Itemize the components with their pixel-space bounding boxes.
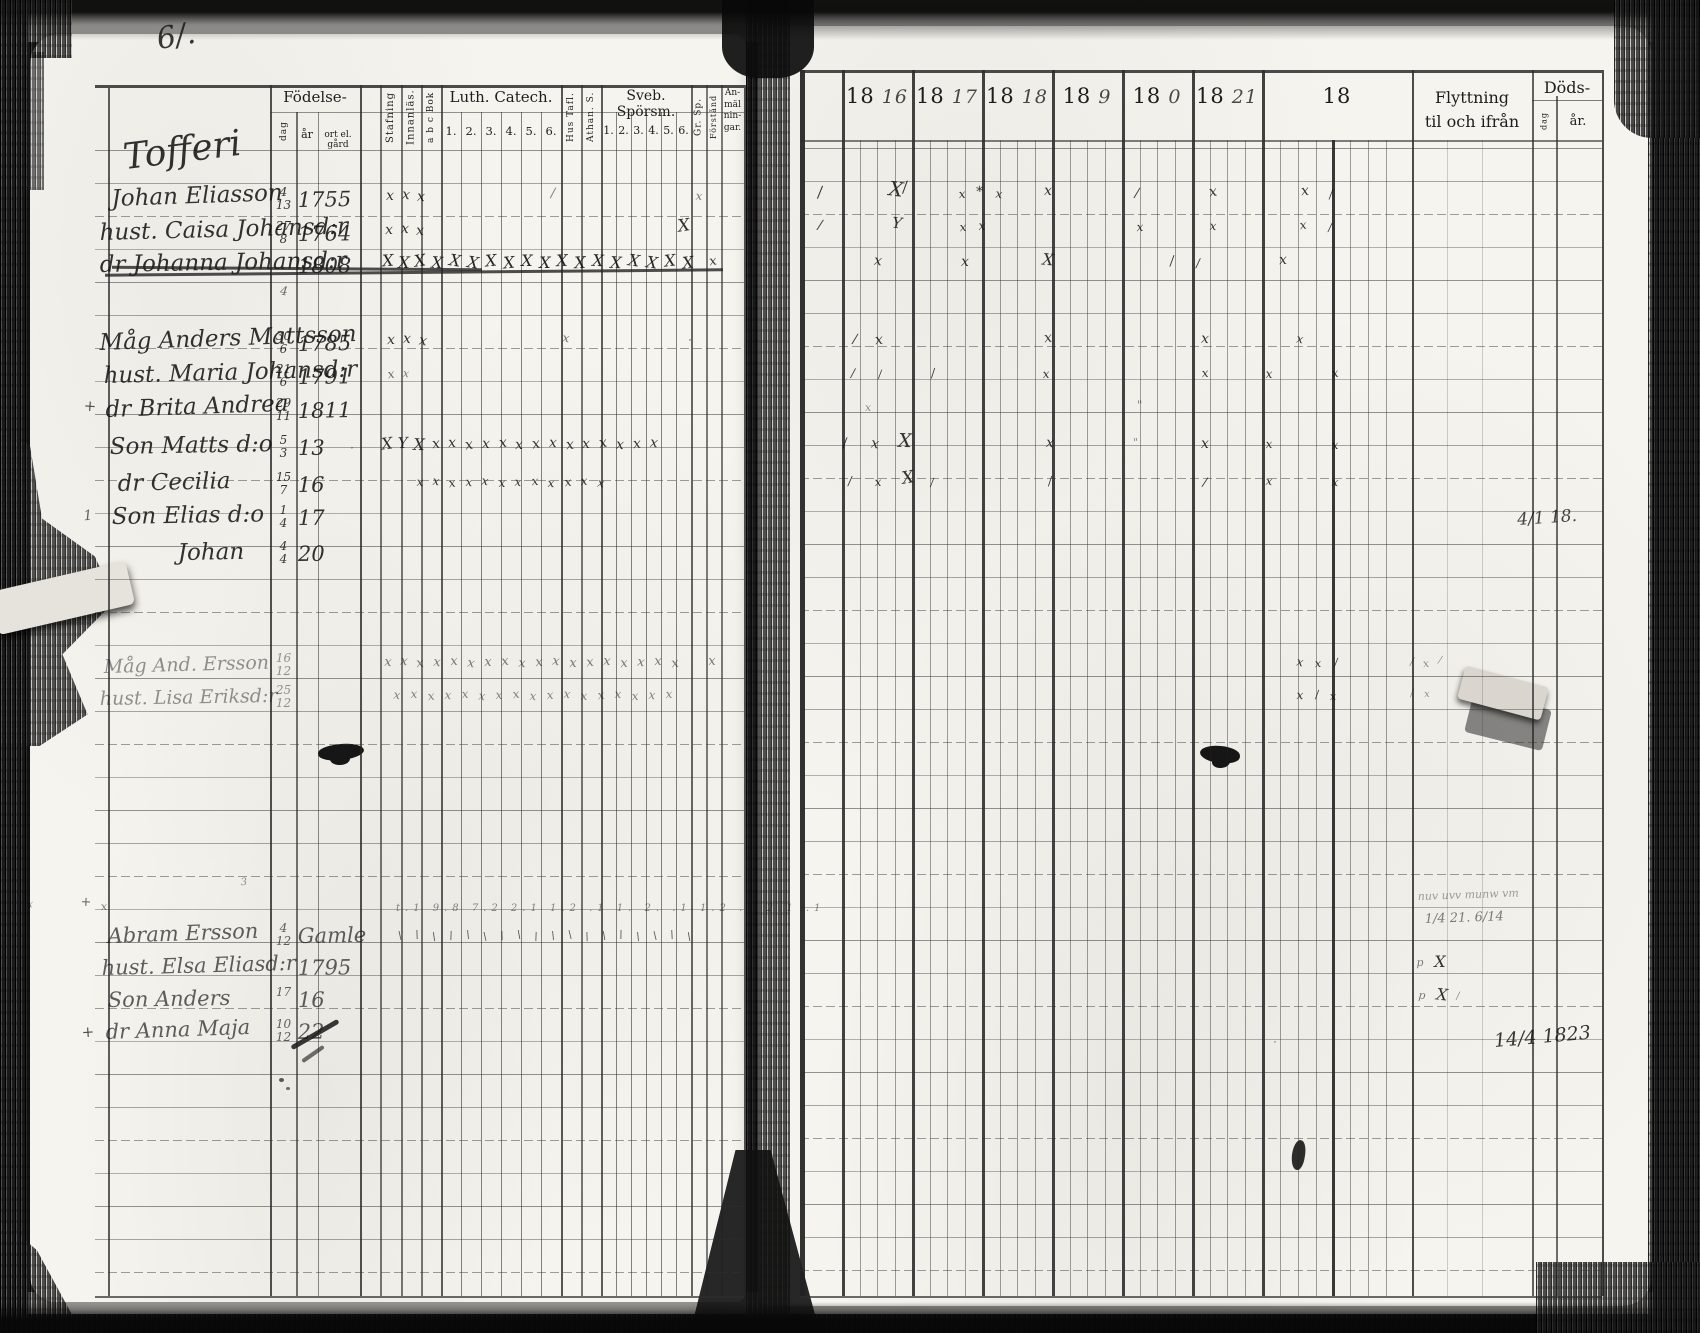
grid-line (95, 843, 744, 844)
birth-frac-part: 7 (270, 484, 297, 497)
year-header: 18 16 (842, 84, 912, 108)
birth-frac-part: 16 (270, 652, 297, 665)
mark: X (1430, 954, 1450, 970)
grid-line (800, 940, 1602, 941)
mark: 1 (77, 508, 98, 524)
fodelse-header: Födelse- (270, 88, 360, 106)
grid-line (95, 1173, 744, 1174)
grid-line (501, 112, 502, 1296)
grid-line (800, 742, 1602, 743)
grid-line (1262, 70, 1265, 1296)
birth-day-month: 306 (270, 330, 297, 355)
year-header-written: 18 (1015, 86, 1048, 108)
grid-line (800, 907, 1602, 908)
birth-frac-part: 12 (270, 665, 297, 678)
birth-frac-part: 5 (270, 434, 297, 447)
grid-line (1602, 70, 1604, 1296)
grid-line (744, 85, 746, 1296)
mark: / (1448, 992, 1468, 1003)
birth-day-month: 53 (270, 434, 297, 459)
mark: x (1259, 368, 1279, 380)
grid-line (95, 1074, 744, 1075)
mark: / (922, 476, 943, 489)
mark: / (845, 332, 866, 346)
luth-col-number: 6. (541, 124, 561, 138)
mark: / (1188, 257, 1208, 270)
grid-line (270, 112, 744, 113)
grid-line (95, 85, 744, 88)
sveb-col-number: 5. (661, 124, 676, 137)
grid-line (800, 577, 1602, 578)
sveb-col-number: 6. (676, 124, 691, 137)
mark: x (1294, 183, 1315, 199)
mark: x (1195, 366, 1216, 380)
grid-line (481, 112, 482, 1296)
birth-year: 16 (298, 473, 325, 497)
mark: p (1412, 989, 1433, 1002)
grid-line (95, 645, 744, 646)
mark: · (1265, 1035, 1286, 1049)
birth-frac-part: 27 (270, 220, 297, 233)
mark: x (1259, 474, 1280, 487)
grid-line (982, 70, 985, 1296)
grid-line (95, 1107, 744, 1108)
mark: x (1325, 439, 1345, 452)
mark: x (858, 401, 879, 413)
annotation: 1/4 21. 6/14 (1424, 909, 1504, 927)
birth-day-month: 44 (270, 540, 297, 565)
birth-frac-part: 4 (270, 540, 297, 553)
birth-day-month: 1012 (270, 1018, 297, 1043)
birth-frac-part: 1 (270, 504, 297, 517)
mark: x (1203, 220, 1223, 233)
row-name: Johan (178, 539, 245, 566)
mark: / (543, 187, 563, 200)
birth-frac-part: 4 (270, 186, 297, 199)
grid-line (1412, 70, 1414, 1296)
grid-line (95, 1206, 744, 1207)
mark: x (1325, 475, 1346, 488)
row-name: Son Elias d:o (112, 501, 265, 530)
birth-day-month: 14 (270, 504, 297, 529)
luth-col-number: 3. (481, 124, 501, 138)
grid-line (521, 112, 522, 1296)
mark: " (1129, 398, 1150, 412)
row-name: Son Anders (108, 986, 231, 1012)
grid-line (95, 678, 744, 679)
mark: · (342, 441, 363, 454)
bottom-right-corner (1536, 1262, 1700, 1333)
ink-fleck (279, 1078, 284, 1082)
grid-line (541, 112, 542, 1296)
grid-line (842, 70, 845, 1296)
mark: x (1323, 691, 1343, 703)
birth-frac-part: 21 (270, 363, 297, 376)
mark: x (1259, 438, 1279, 451)
birth-frac-part: 4 (270, 922, 297, 935)
grid-line (800, 973, 1602, 974)
mark: x (555, 331, 576, 345)
annotation: 6/. (154, 16, 198, 57)
birth-day-month: 278 (270, 220, 297, 245)
grid-line (800, 1072, 1602, 1073)
ink-blot-left-2 (330, 752, 350, 765)
birth-year: 13 (298, 436, 325, 460)
grid-line (800, 610, 1602, 611)
birth-year: 1764 (298, 221, 352, 246)
mark: x (1273, 252, 1294, 267)
mark: / (1326, 656, 1347, 669)
ink-fleck-2 (286, 1087, 290, 1090)
top-left-corner (0, 0, 72, 58)
mark: X (895, 432, 916, 452)
grid-line (800, 709, 1602, 710)
grid-line (676, 112, 677, 1296)
mark: x (1130, 221, 1150, 234)
forstand-column-label: Förstånd (706, 88, 721, 146)
grid-line (1532, 100, 1602, 101)
birth-day-month: 413 (270, 186, 297, 211)
right-edge-band (1648, 0, 1700, 1333)
grid-line (631, 112, 632, 1296)
mark: Y (886, 215, 907, 232)
luth-col-number: 4. (501, 124, 521, 138)
row-name: Son Matts d:o (110, 431, 273, 460)
grid-line (800, 1138, 1602, 1139)
birth-year: 1791 (298, 364, 352, 389)
grid-line (1192, 70, 1195, 1296)
mark: x (702, 654, 723, 668)
birth-frac-part: 15 (270, 471, 297, 484)
mark: x (868, 332, 889, 348)
innanlas-column-label: Innanläs. (401, 88, 421, 146)
year-header-written: 21 (1225, 86, 1258, 108)
mark: x (643, 435, 664, 451)
birth-frac-part: 12 (270, 697, 297, 710)
grid-line (800, 511, 1602, 512)
luth-catech-header: Luth. Catech. (441, 88, 561, 106)
birth-frac-part: 8 (270, 233, 297, 246)
grid-line (800, 1204, 1602, 1205)
scanned-register-spread: Födelse- dag år ort el. gård Stafning In… (0, 0, 1700, 1333)
mark: x (664, 656, 686, 672)
year-header: 18 9 (1052, 84, 1122, 108)
mark: X (1037, 251, 1058, 269)
mark: x (659, 688, 679, 701)
grid-line (800, 676, 1602, 677)
year-header-written: 16 (875, 86, 908, 108)
mark: / (1320, 187, 1341, 201)
birth-frac-part: 29 (270, 397, 297, 410)
mark: x (988, 187, 1009, 201)
sveb-col-number: 3. (631, 124, 646, 137)
stafning-column-label: Stafning (380, 88, 401, 146)
dods-ar-label: år. (1556, 114, 1600, 129)
fodelse-ort-label: ort el. gård (314, 130, 362, 150)
sveb-col-number: 1. (601, 124, 616, 137)
grid-line (800, 313, 1602, 314)
birth-frac-part: 12 (270, 935, 297, 948)
birth-year: 16 (298, 988, 325, 1012)
mark: x (94, 900, 115, 912)
grid-line (661, 112, 662, 1296)
grid-line (800, 1270, 1602, 1271)
grid-line (95, 876, 744, 877)
mark: x (972, 220, 992, 232)
grid-line (800, 874, 1602, 875)
birth-day-month: 1612 (270, 652, 297, 677)
year-header-written: 9 (1091, 86, 1111, 108)
mark: / (894, 179, 916, 196)
mark: / (1161, 254, 1182, 269)
birth-day-month: 412 (270, 922, 297, 947)
mark: + (80, 398, 101, 414)
year-header: 18 21 (1192, 84, 1262, 108)
birth-year: 17 (298, 506, 325, 530)
grid-line (95, 1272, 744, 1273)
mark: x (1324, 366, 1345, 380)
mark: x (411, 189, 432, 204)
grid-line (800, 1039, 1602, 1040)
grid-line (800, 214, 1602, 215)
grid-line (800, 148, 1602, 149)
mark: X (677, 254, 699, 272)
mark: + (78, 1024, 99, 1040)
year-header: 18 18 (982, 84, 1052, 108)
birth-year: 1785 (298, 331, 352, 356)
grid-line (1122, 70, 1125, 1296)
birth-frac-part: 3 (270, 447, 297, 460)
mark: x (1417, 689, 1437, 700)
year-header-written: 0 (1161, 86, 1181, 108)
year-header: 18 (1262, 84, 1412, 108)
grid-line (912, 70, 915, 1296)
sveb-col-number: 4. (646, 124, 661, 137)
grsp-column-label: Gr. Sp. (691, 88, 706, 146)
year-header-written: 17 (945, 86, 978, 108)
mark: / (834, 436, 855, 451)
annotation: – ·– — · · –– –· · — — – · (64, 0, 319, 13)
birth-day-month: 2512 (270, 684, 297, 709)
mark: / (809, 218, 830, 233)
mark: / (1127, 186, 1148, 200)
left-edge-patch-top (0, 52, 44, 190)
mark: x (1195, 331, 1216, 346)
grid-line (800, 1296, 1602, 1298)
row-name: Måg And. Ersson (103, 652, 269, 678)
birth-frac-part: 6 (270, 343, 297, 356)
grid-line (800, 181, 1602, 182)
dods-dag-label: dag (1534, 104, 1554, 138)
grid-line (800, 775, 1602, 776)
birth-frac-part: 17 (270, 986, 297, 999)
luth-col-number: 5. (521, 124, 541, 138)
birth-frac-part: 6 (270, 376, 297, 389)
mark: x (1040, 435, 1061, 450)
grid-line (646, 112, 647, 1296)
grid-line (616, 112, 617, 1296)
mark: / (840, 474, 861, 487)
grid-line (800, 1006, 1602, 1007)
mark: x (1038, 184, 1058, 198)
grid-line (800, 643, 1602, 644)
mark: · (679, 333, 700, 348)
mark: x (410, 224, 430, 238)
row-name: dr Cecilia (117, 468, 231, 497)
birth-frac-part: 4 (270, 517, 297, 530)
grid-line (800, 841, 1602, 842)
row-name: hust. Lisa Eriksd:r (100, 685, 278, 710)
grid-line (95, 315, 744, 316)
grid-line (95, 744, 744, 745)
grid-line (800, 412, 1602, 413)
luth-col-number: 1. (441, 124, 461, 138)
grid-line (95, 1041, 744, 1042)
birth-year: 1795 (298, 955, 352, 980)
mark: / (809, 184, 830, 201)
mark: x (867, 253, 888, 269)
mark: / (869, 368, 890, 381)
hustafl-column-label: Hus Tafl. (561, 88, 581, 146)
birth-frac-part: 13 (270, 199, 297, 212)
mark: / (1320, 222, 1340, 234)
grid-line (800, 70, 1602, 73)
year-header: 18 17 (912, 84, 982, 108)
grid-line (800, 808, 1602, 809)
row-name: dr Anna Maja (105, 1015, 250, 1044)
mark: p (1410, 957, 1430, 968)
birth-frac-part: 12 (270, 1031, 297, 1044)
year-header: 18 0 (1122, 84, 1192, 108)
dods-header: Döds- (1532, 78, 1602, 97)
row-name: hust. Elsa Eliasd:r (101, 951, 296, 980)
fodelse-dag-label: dag (272, 114, 296, 148)
grid-line (800, 247, 1602, 248)
grid-line (95, 579, 744, 580)
grid-line (1532, 70, 1534, 1296)
grid-line (800, 70, 805, 1296)
grid-line (318, 112, 319, 1296)
bottom-edge-band (0, 1302, 1700, 1333)
mark: X (897, 469, 919, 489)
birth-day-month: 157 (270, 471, 297, 496)
mark: x (864, 436, 886, 453)
mark: / (843, 367, 863, 379)
grid-line (1556, 96, 1558, 1296)
mark: x (1037, 330, 1059, 346)
birth-frac-part: 30 (270, 330, 297, 343)
birth-day-month: 17 (270, 986, 297, 999)
mark: x (1036, 367, 1057, 380)
birth-year: 22 (298, 1020, 325, 1044)
grid-line (800, 1237, 1602, 1238)
birth-year: 20 (298, 542, 325, 566)
birth-frac-part: 25 (270, 684, 297, 697)
annotation: 4/1 18. (1517, 506, 1578, 530)
grid-line (95, 1239, 744, 1240)
birth-year: 1811 (298, 398, 352, 423)
birth-frac-part: 11 (270, 410, 297, 423)
grid-line (461, 112, 462, 1296)
top-right-corner (1614, 0, 1700, 138)
grid-line (95, 612, 744, 613)
mark: / (1194, 475, 1215, 489)
mark: X (673, 217, 695, 237)
mark: x (1195, 437, 1215, 451)
grid-line (95, 777, 744, 778)
flyttning-header: Flyttning til och ifrån (1414, 86, 1530, 134)
grid-line (800, 544, 1602, 545)
mark: x (689, 189, 710, 202)
birth-frac-part: 4 (270, 553, 297, 566)
abcbok-column-label: a b c Bok (421, 88, 441, 146)
birth-frac-part: 10 (270, 1018, 297, 1031)
spine-shadow (746, 0, 790, 1333)
grid-line (95, 1296, 744, 1298)
mark: \ (679, 930, 700, 942)
grid-line (800, 1105, 1602, 1106)
mark: 4 (273, 284, 294, 298)
grid-line (800, 280, 1602, 281)
annotation: t.1 9.8 7.2 2.1 1.2 .1 1. 2. .1 1.2 .1 2… (396, 903, 825, 914)
mark: x (955, 255, 975, 269)
grid-line (95, 282, 744, 283)
mark: X (517, 253, 537, 269)
birth-day-month: 2911 (270, 397, 297, 422)
birth-day-month: 216 (270, 363, 297, 388)
grid-line (95, 711, 744, 712)
mark: x (868, 475, 889, 488)
luth-col-number: 2. (461, 124, 481, 138)
mark: x (412, 333, 434, 350)
grid-line (800, 140, 1602, 142)
grid-line (800, 1171, 1602, 1172)
mark: x (395, 367, 416, 380)
grid-line (95, 1140, 744, 1141)
mark: x (952, 220, 973, 234)
grid-line (95, 810, 744, 811)
birth-year: 1755 (298, 187, 352, 212)
birth-year: Gamle (298, 923, 367, 948)
sveb-col-number: 2. (616, 124, 631, 137)
